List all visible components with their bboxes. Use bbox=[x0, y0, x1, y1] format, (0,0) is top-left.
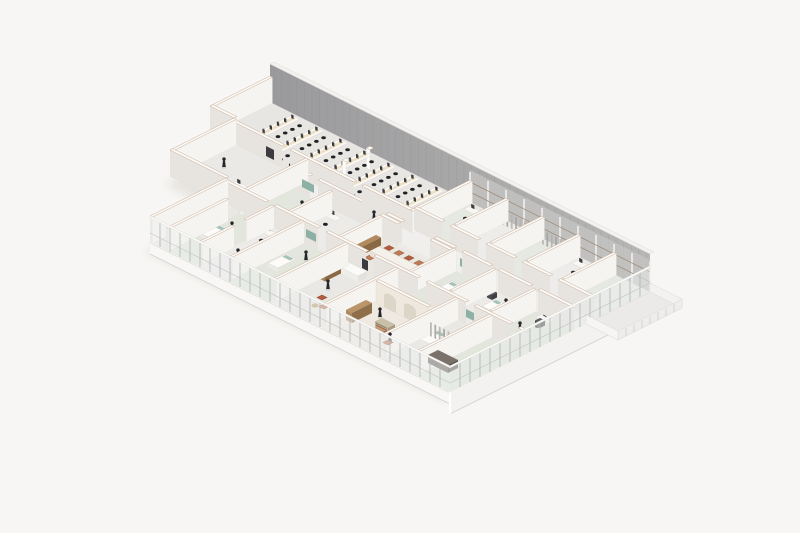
curtain bbox=[546, 232, 548, 247]
curtain bbox=[511, 214, 513, 229]
curtain bbox=[430, 322, 432, 337]
curtain bbox=[434, 324, 436, 339]
architectural-rendering bbox=[0, 0, 800, 533]
floorplan-svg bbox=[0, 0, 800, 533]
